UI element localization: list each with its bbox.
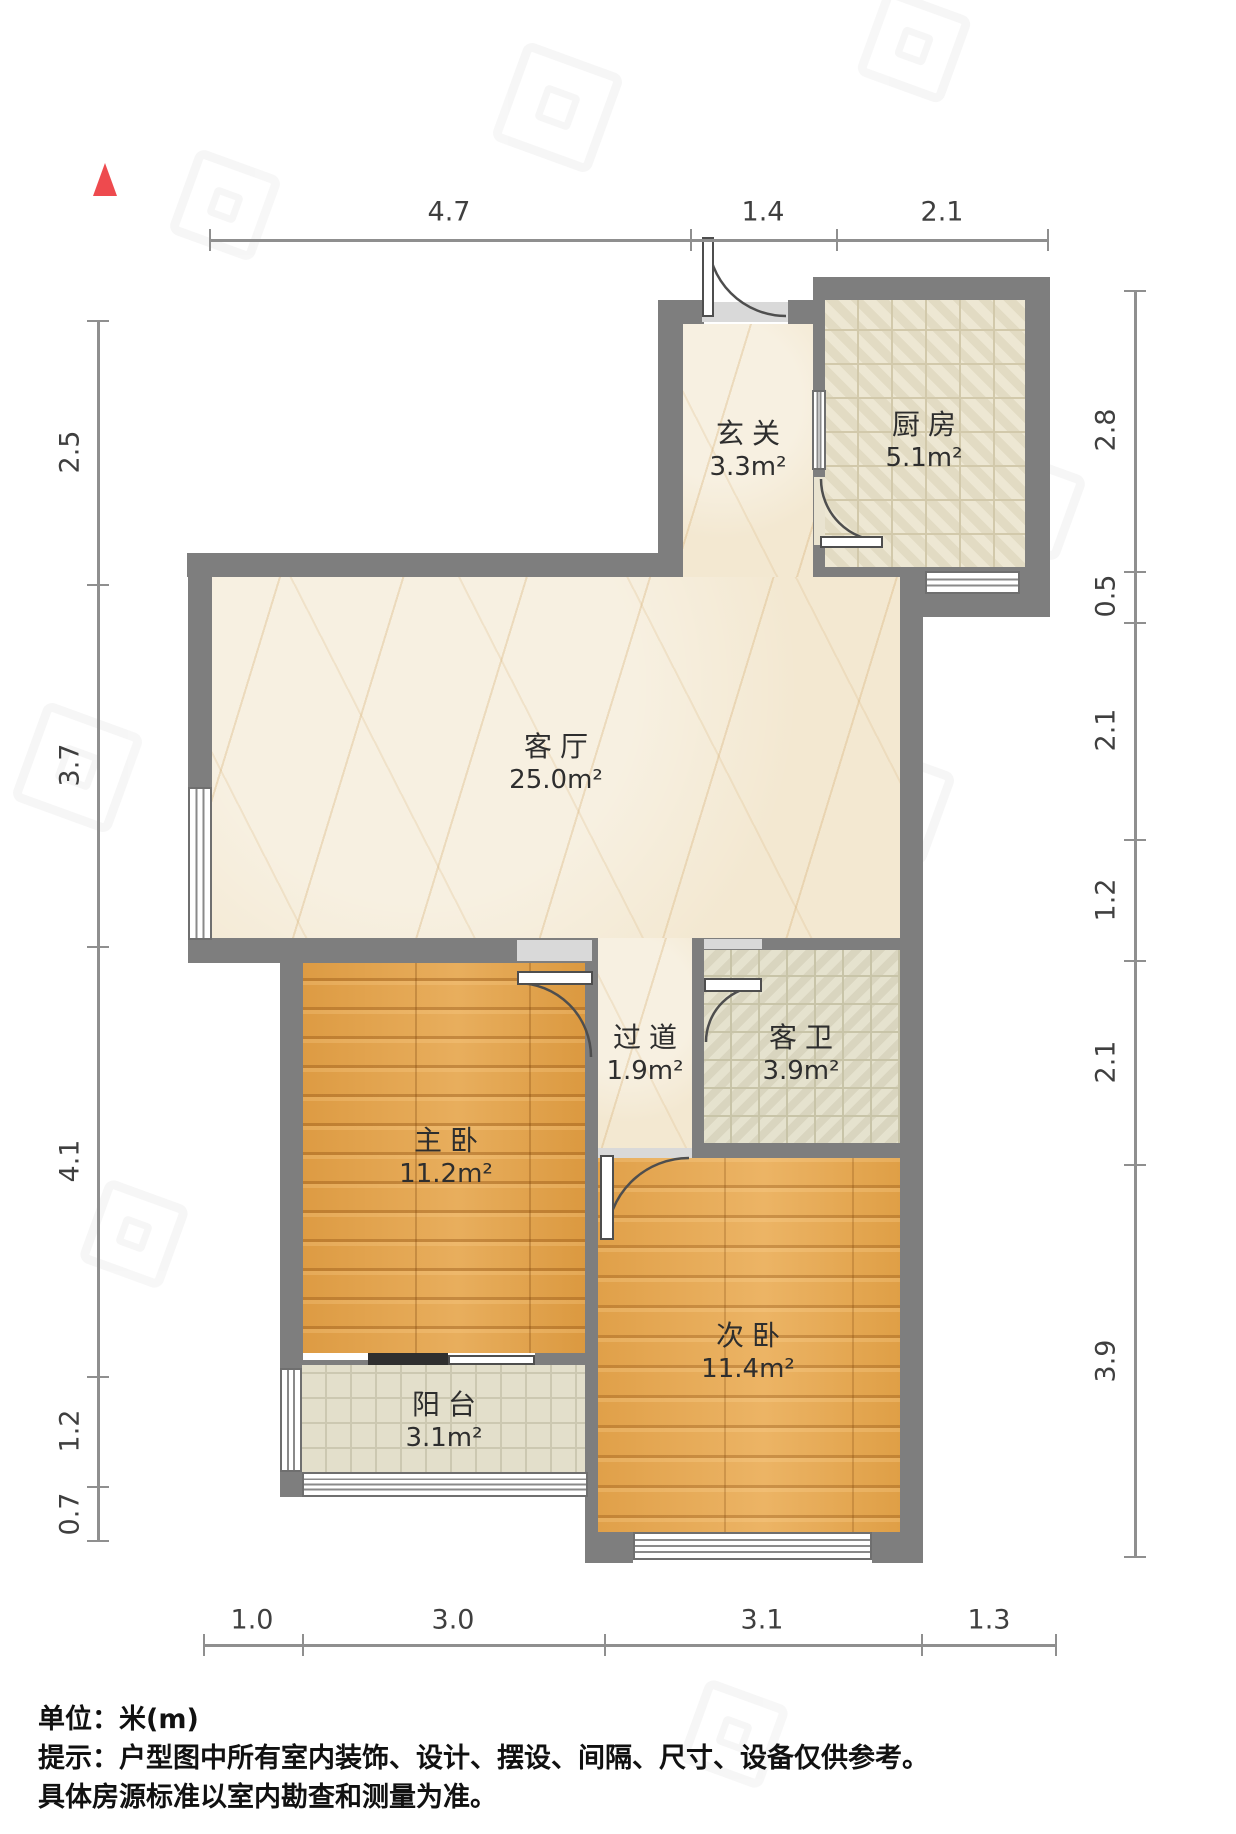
room-name-living: 客厅 [509,730,603,764]
room-area-kitchen: 5.1m² [884,442,964,474]
dim-tick [1124,290,1146,292]
dim-label-right-1: 0.5 [1091,575,1122,618]
room-area-living: 25.0m² [509,764,603,796]
dim-tick [604,1634,606,1656]
bath-door-arc [706,986,762,1042]
dim-label-left-3: 1.2 [55,1410,86,1453]
room-label-hallway: 过道 1.9m² [605,1021,685,1087]
second-door-arc [607,1158,689,1240]
bath-door-leaf [704,978,762,992]
dim-tick [1055,1634,1057,1656]
room-area-entry: 3.3m² [708,451,788,483]
dim-label-top-0: 4.7 [428,197,471,228]
room-label-master: 主卧 11.2m² [399,1124,493,1190]
footer-note-line1: 提示：户型图中所有室内装饰、设计、摆设、间隔、尺寸、设备仅供参考。 [38,1739,929,1778]
dim-line-left [97,320,100,1542]
dim-tick [87,584,109,586]
dim-label-right-0: 2.8 [1091,409,1122,452]
footer-notes: 单位：米(m) 提示：户型图中所有室内装饰、设计、摆设、间隔、尺寸、设备仅供参考… [38,1700,929,1817]
dim-tick [302,1634,304,1656]
room-area-second: 11.4m² [701,1353,795,1385]
second-door-leaf [600,1155,614,1240]
room-label-entry: 玄关 3.3m² [708,417,788,483]
room-label-bath: 客卫 3.9m² [761,1021,841,1087]
kitchen-door-leaf [820,536,883,548]
dim-tick [1124,622,1146,624]
dim-tick [87,1540,109,1542]
dim-tick [87,946,109,948]
room-area-hallway: 1.9m² [605,1055,685,1087]
room-name-kitchen: 厨房 [884,408,964,442]
kitchen-door-arc [821,479,883,541]
room-name-entry: 玄关 [708,417,788,451]
room-label-living: 客厅 25.0m² [509,730,603,796]
room-area-master: 11.2m² [399,1158,493,1190]
dim-tick [1124,839,1146,841]
dim-line-top [209,239,1049,242]
dim-label-bottom-2: 3.1 [741,1605,784,1636]
dim-tick [87,1486,109,1488]
dim-label-bottom-1: 3.0 [432,1605,475,1636]
dim-tick [1124,571,1146,573]
dim-label-bottom-0: 1.0 [231,1605,274,1636]
room-name-bath: 客卫 [761,1021,841,1055]
dim-tick [1124,1164,1146,1166]
dim-tick [690,229,692,251]
entry-door-arc [708,238,786,316]
room-name-balcony: 阳台 [404,1388,484,1422]
dim-tick [209,229,211,251]
room-label-kitchen: 厨房 5.1m² [884,408,964,474]
footer-unit-line: 单位：米(m) [38,1700,929,1739]
dim-tick [836,229,838,251]
dim-label-right-5: 3.9 [1091,1340,1122,1383]
room-area-balcony: 3.1m² [404,1422,484,1454]
dim-label-bottom-3: 1.3 [968,1605,1011,1636]
dim-label-top-2: 2.1 [921,197,964,228]
dim-tick [87,320,109,322]
dim-tick [921,1634,923,1656]
room-name-master: 主卧 [399,1124,493,1158]
dim-tick [87,1376,109,1378]
dim-tick [1124,960,1146,962]
entry-door-leaf [702,237,714,317]
footer-note-line2: 具体房源标准以室内勘查和测量为准。 [38,1778,929,1817]
dim-tick [1047,229,1049,251]
dim-label-left-4: 0.7 [55,1493,86,1536]
dim-line-bottom [203,1644,1057,1647]
room-label-second: 次卧 11.4m² [701,1319,795,1385]
dim-label-right-3: 1.2 [1091,879,1122,922]
dim-label-left-0: 2.5 [55,431,86,474]
room-name-hallway: 过道 [605,1021,685,1055]
door-swing-arcs [0,0,1236,1834]
room-name-second: 次卧 [701,1319,795,1353]
dim-tick [1124,1556,1146,1558]
dim-label-left-1: 3.7 [55,744,86,787]
dim-label-right-2: 2.1 [1091,709,1122,752]
master-door-arc [517,983,591,1057]
dim-tick [203,1634,205,1656]
room-area-bath: 3.9m² [761,1055,841,1087]
dim-label-top-1: 1.4 [742,197,785,228]
floorplan-page: { "plan": { "title_type": "residential-f… [0,0,1236,1834]
dim-label-left-2: 4.1 [55,1140,86,1183]
dim-label-right-4: 2.1 [1091,1041,1122,1084]
master-door-leaf [517,971,593,985]
room-label-balcony: 阳台 3.1m² [404,1388,484,1454]
dim-line-right [1134,290,1137,1558]
